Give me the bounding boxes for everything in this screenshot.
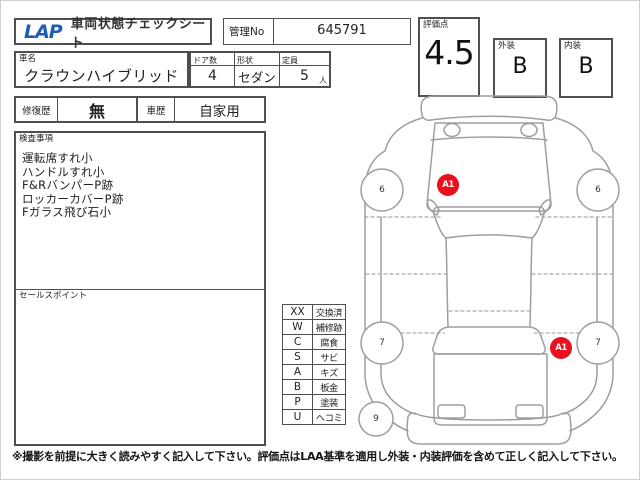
repair-value: 無 [58, 98, 138, 121]
body-shape-value: セダン [235, 66, 279, 86]
rear-right-wheel-label: 7 [595, 338, 601, 348]
capacity-unit: 人 [319, 75, 327, 86]
interior-label: 内装 [564, 41, 581, 51]
score-value: 4.5 [420, 33, 478, 72]
inspection-item: F&RバンパーP跡 [22, 179, 259, 193]
front-right-wheel-label: 6 [595, 185, 601, 195]
legend-row: C 腐食 [283, 335, 346, 350]
rear-window-outline [433, 327, 545, 354]
capacity-number: 5 [300, 68, 309, 84]
inspection-items: 運転席すれ小 ハンドルすれ小 F&RバンパーP跡 ロッカーカバーP跡 Fガラス飛… [22, 152, 259, 220]
body-shape-label: 形状 [235, 53, 279, 66]
usage-label: 車歴 [138, 98, 175, 121]
score-box: 評価点 4.5 [418, 17, 480, 97]
manage-no-box: 管理No 645791 [223, 18, 411, 45]
legend-code: C [283, 335, 313, 350]
car-name-value: クラウンハイブリッド [16, 53, 187, 86]
symbol-legend-table: XX 交換済 W 補修跡 C 腐食 S サビ A キズ B 板金 [282, 304, 346, 425]
inspection-box: 検査事項 運転席すれ小 ハンドルすれ小 F&RバンパーP跡 ロッカーカバーP跡 … [14, 131, 266, 446]
spare-circle-label: 9 [373, 414, 379, 424]
capacity-value: 5 人 [280, 66, 329, 86]
score-label: 評価点 [423, 20, 449, 30]
doors-label: ドア数 [191, 53, 234, 66]
capacity-label: 定員 [280, 53, 329, 66]
hood-outline [427, 123, 551, 211]
legend-row: W 補修跡 [283, 320, 346, 335]
rear-bumper-outline [407, 413, 571, 444]
damage-marker-hood: A1 [437, 174, 459, 196]
interior-value: B [561, 54, 611, 79]
footer-note: ※撮影を前提に大きく読みやすく記入して下さい。評価点はLAA基準を適用し外装・内… [12, 448, 639, 464]
trunk-outline [434, 354, 547, 425]
manage-no-label: 管理No [224, 19, 274, 44]
manage-no-value: 645791 [274, 19, 410, 44]
car-name-label: 車名 [19, 54, 36, 64]
legend-label: 腐食 [313, 335, 346, 350]
doors-value: 4 [191, 66, 234, 86]
legend-code: U [283, 410, 313, 425]
lap-logo: LAP [24, 21, 62, 43]
legend-row: A キズ [283, 365, 346, 380]
exterior-label: 外装 [498, 41, 515, 51]
legend-code: XX [283, 305, 313, 320]
legend-label: 補修跡 [313, 320, 346, 335]
front-left-wheel-label: 6 [379, 185, 385, 195]
legend-label: キズ [313, 365, 346, 380]
inspection-item: Fガラス飛び石小 [22, 206, 259, 220]
car-diagram [351, 89, 640, 449]
legend-row: P 塗装 [283, 395, 346, 410]
damage-marker-rear-right: A1 [550, 337, 572, 359]
usage-value: 自家用 [175, 98, 264, 121]
legend-row: B 板金 [283, 380, 346, 395]
legend-label: サビ [313, 350, 346, 365]
front-bumper-outline [421, 96, 557, 120]
rear-left-wheel-label: 7 [379, 338, 385, 348]
legend-row: U ヘコミ [283, 410, 346, 425]
legend-label: 板金 [313, 380, 346, 395]
legend-row: XX 交換済 [283, 305, 346, 320]
legend-code: B [283, 380, 313, 395]
legend-code: A [283, 365, 313, 380]
check-sheet: LAP 車両状態チェックシート 管理No 645791 評価点 4.5 外装 B… [0, 0, 640, 480]
sheet-title: 車両状態チェックシート [71, 13, 210, 51]
legend-row: S サビ [283, 350, 346, 365]
spec-table: ドア数 4 形状 セダン 定員 5 人 [189, 51, 331, 88]
legend-code: P [283, 395, 313, 410]
inspection-item: ロッカーカバーP跡 [22, 193, 259, 207]
logo-title-box: LAP 車両状態チェックシート [14, 18, 212, 45]
car-name-box: 車名 クラウンハイブリッド [14, 51, 189, 88]
capacity-column: 定員 5 人 [280, 53, 329, 86]
legend-code: S [283, 350, 313, 365]
roof-sides [446, 238, 532, 326]
doors-column: ドア数 4 [191, 53, 235, 86]
body-shape-column: 形状 セダン [235, 53, 280, 86]
repair-label: 修復歴 [16, 98, 58, 121]
inspection-section: 検査事項 運転席すれ小 ハンドルすれ小 F&RバンパーP跡 ロッカーカバーP跡 … [16, 133, 264, 289]
exterior-value: B [495, 54, 545, 79]
inspection-title: 検査事項 [19, 134, 53, 144]
legend-code: W [283, 320, 313, 335]
legend-label: 塗装 [313, 395, 346, 410]
inspection-item: 運転席すれ小 [22, 152, 259, 166]
wheel-circles [359, 169, 619, 436]
legend-label: ヘコミ [313, 410, 346, 425]
legend-label: 交換済 [313, 305, 346, 320]
inspection-item: ハンドルすれ小 [22, 166, 259, 180]
sales-points-title: セールスポイント [19, 291, 87, 301]
sales-points-section: セールスポイント [16, 289, 264, 444]
repair-history-row: 修復歴 無 車歴 自家用 [14, 96, 266, 123]
